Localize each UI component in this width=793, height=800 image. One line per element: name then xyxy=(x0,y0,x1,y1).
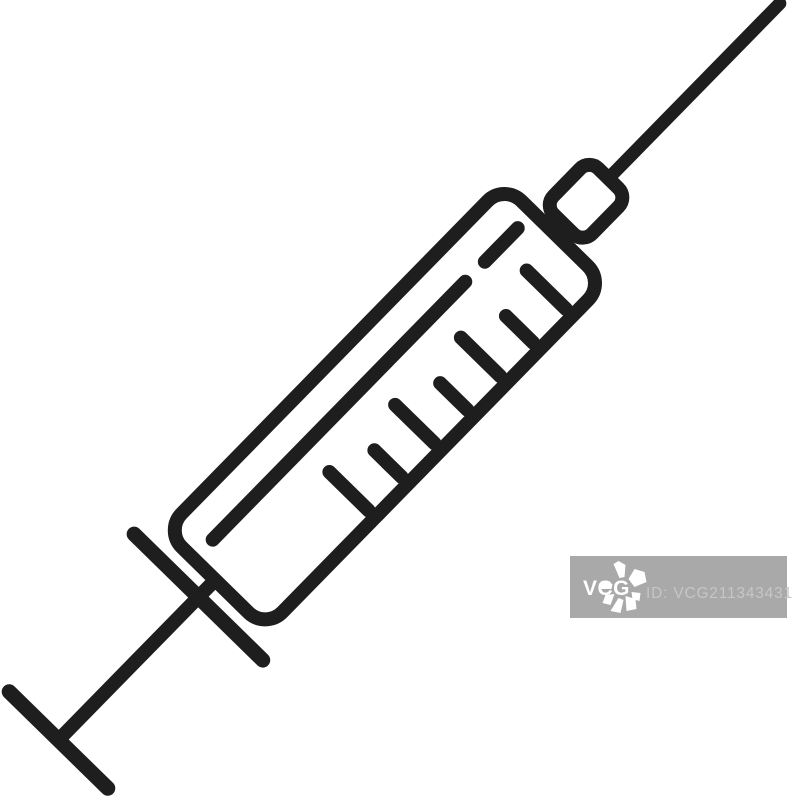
watermark-id-text: ID: VCG211343431344 xyxy=(646,585,793,602)
syringe-scale-tick-long xyxy=(329,472,368,510)
syringe-barrel xyxy=(165,184,605,629)
syringe-scale-tick-long xyxy=(461,338,500,376)
syringe-needle xyxy=(610,3,780,177)
syringe-liquid-line xyxy=(213,282,466,540)
syringe-scale-tick-short xyxy=(440,383,467,410)
syringe-icon xyxy=(0,0,793,800)
stock-image-canvas: VCG ID: VCG211343431344 xyxy=(0,0,793,800)
vcg-watermark: VCG ID: VCG211343431344 xyxy=(570,556,793,618)
syringe-illustration: VCG ID: VCG211343431344 xyxy=(0,0,793,800)
syringe-liquid-dash xyxy=(485,228,518,262)
syringe-scale-tick-short xyxy=(506,316,533,343)
syringe-scale-tick-long xyxy=(395,405,434,443)
syringe-plunger-rod xyxy=(61,581,214,737)
syringe-scale-tick-long xyxy=(527,271,566,309)
syringe-scale-tick-short xyxy=(374,450,401,477)
